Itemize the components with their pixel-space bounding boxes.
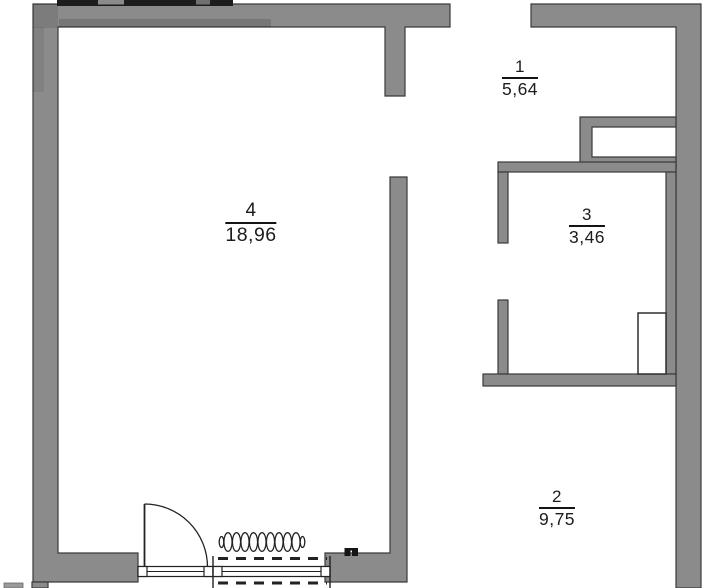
- top-edge-strip: [57, 0, 233, 6]
- room-area: 9,75: [539, 510, 575, 529]
- room-label-3: 3 3,46: [569, 206, 605, 247]
- room-number: 3: [582, 206, 592, 224]
- wall-room3-bottom: [483, 374, 676, 386]
- corner-artifact: [4, 583, 23, 588]
- room-label-4: 4 18,96: [225, 201, 276, 246]
- room-number: 1: [515, 58, 525, 76]
- wall-room3-left-lower: [498, 300, 508, 374]
- room-area: 3,46: [569, 228, 605, 247]
- wall-room3-top: [498, 162, 676, 172]
- vent-shaft: [638, 313, 666, 374]
- room-label-2: 2 9,75: [539, 488, 575, 529]
- wall-stub-bottom-left: [32, 582, 48, 588]
- wall-middle-tall: [325, 177, 407, 582]
- wall-vent-niche: [580, 117, 676, 167]
- room-number: 2: [552, 488, 562, 506]
- room-label-1: 1 5,64: [502, 58, 538, 99]
- wall-left-shell: [33, 4, 450, 582]
- floor-plan-drawing: [0, 0, 706, 588]
- room-area: 18,96: [225, 225, 276, 246]
- room-number: 4: [245, 201, 256, 221]
- wall-room3-right: [666, 172, 676, 374]
- door-swing: [145, 504, 208, 567]
- room-area: 5,64: [502, 80, 538, 99]
- floor-plan: 4 18,96 1 5,64 3 3,46 2 9,75: [0, 0, 706, 588]
- wall-room3-left-upper: [498, 172, 508, 243]
- window-sill: [138, 567, 330, 577]
- radiator-coil: [219, 533, 305, 552]
